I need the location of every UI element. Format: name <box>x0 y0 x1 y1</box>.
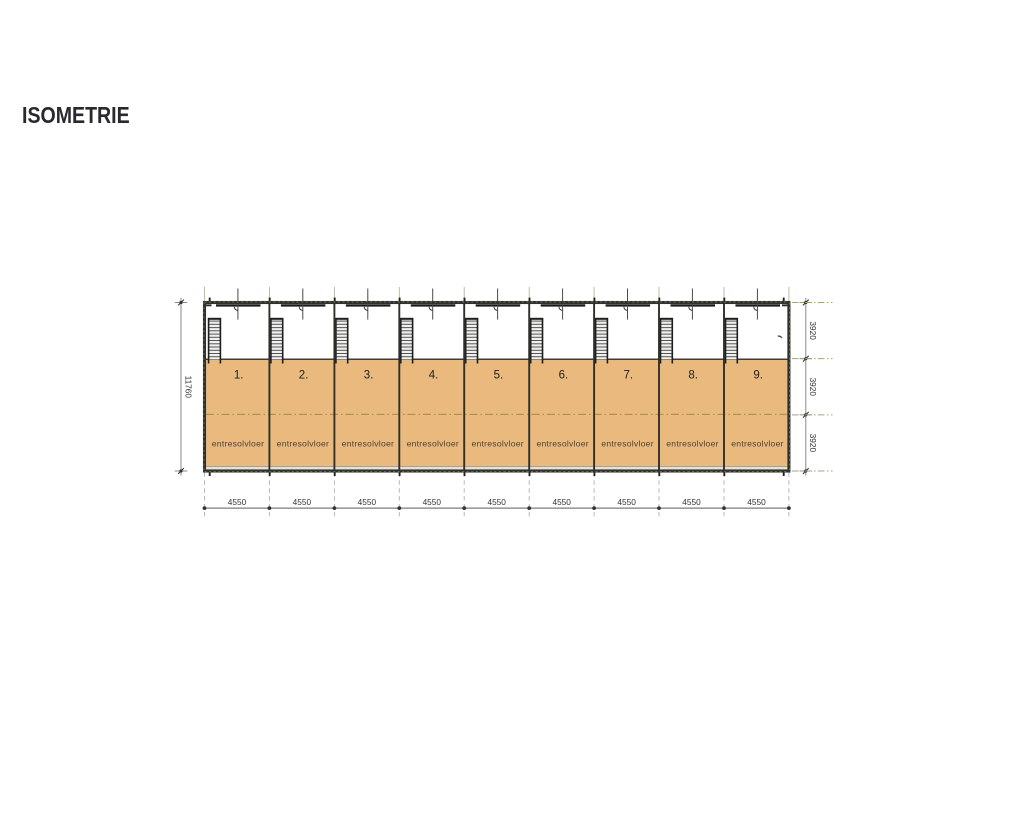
svg-text:4550: 4550 <box>423 497 442 507</box>
svg-text:5.: 5. <box>494 370 504 382</box>
svg-text:entresolvloer: entresolvloer <box>471 438 523 448</box>
svg-text:4550: 4550 <box>228 497 247 507</box>
svg-text:4550: 4550 <box>552 497 571 507</box>
svg-text:4550: 4550 <box>358 497 377 507</box>
svg-text:entresolvloer: entresolvloer <box>601 438 653 448</box>
svg-text:3920: 3920 <box>808 378 818 397</box>
svg-text:4550: 4550 <box>682 497 701 507</box>
svg-text:entresolvloer: entresolvloer <box>536 438 588 448</box>
svg-text:11760: 11760 <box>183 376 193 399</box>
svg-text:4550: 4550 <box>617 497 636 507</box>
svg-text:7.: 7. <box>624 370 634 382</box>
svg-text:3920: 3920 <box>808 434 818 453</box>
svg-text:entresolvloer: entresolvloer <box>666 438 718 448</box>
svg-text:2.: 2. <box>299 370 309 382</box>
svg-text:entresolvloer: entresolvloer <box>731 438 783 448</box>
svg-text:4.: 4. <box>429 370 439 382</box>
svg-text:3.: 3. <box>364 370 374 382</box>
svg-text:entresolvloer: entresolvloer <box>277 438 329 448</box>
svg-text:6.: 6. <box>559 370 569 382</box>
svg-text:1.: 1. <box>234 370 244 382</box>
svg-text:4550: 4550 <box>747 497 766 507</box>
svg-text:4550: 4550 <box>487 497 506 507</box>
svg-text:entresolvloer: entresolvloer <box>342 438 394 448</box>
svg-text:entresolvloer: entresolvloer <box>407 438 459 448</box>
svg-text:9.: 9. <box>753 370 763 382</box>
svg-text:3920: 3920 <box>808 321 818 340</box>
svg-text:4550: 4550 <box>293 497 312 507</box>
svg-text:entresolvloer: entresolvloer <box>212 438 264 448</box>
svg-text:8.: 8. <box>688 370 698 382</box>
